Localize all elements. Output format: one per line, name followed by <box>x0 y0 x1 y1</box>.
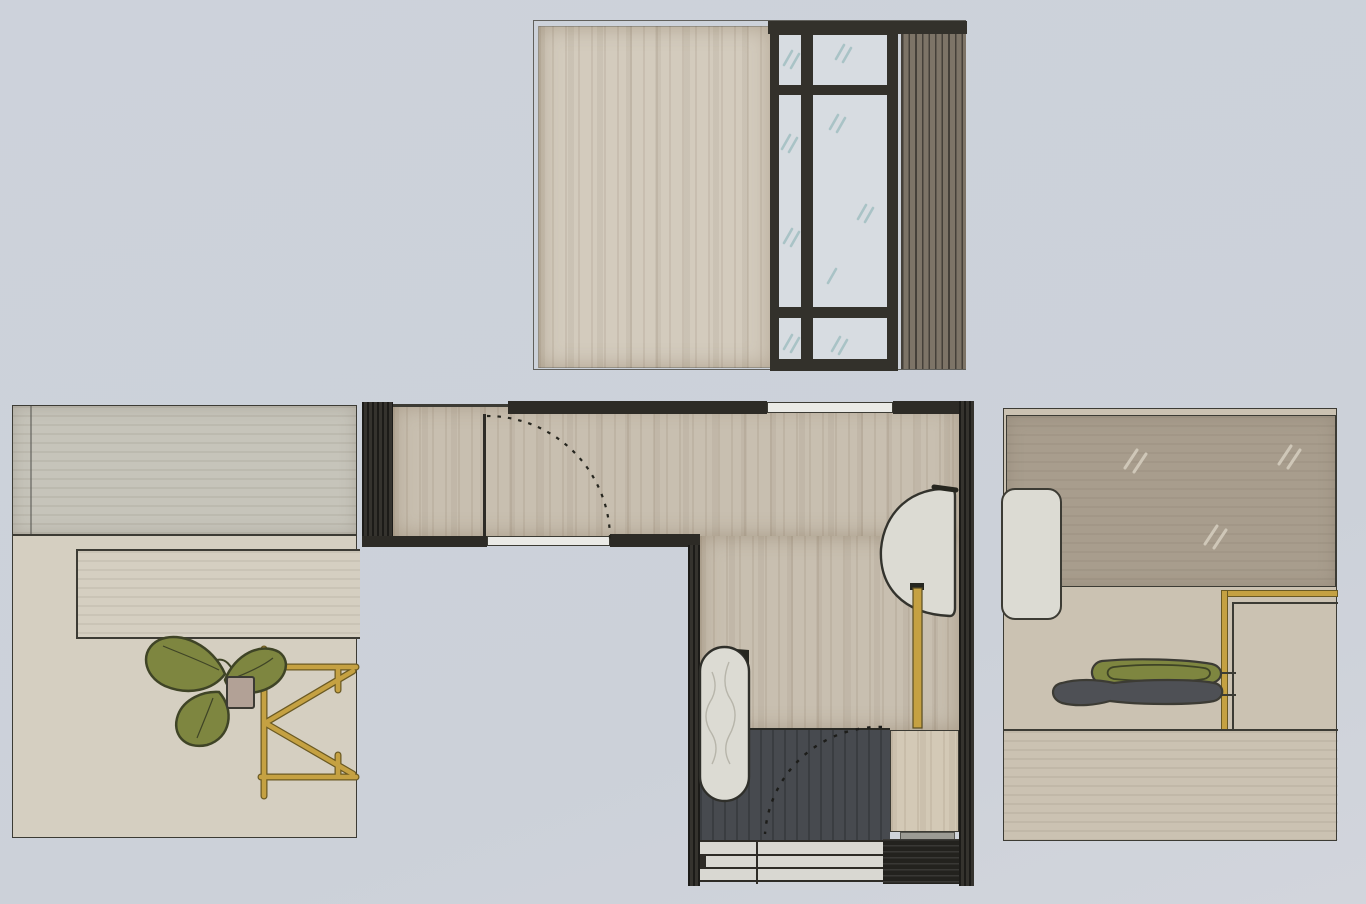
floor-plan <box>0 0 1366 904</box>
plan-overlay-art <box>360 400 980 890</box>
entry-door-swing-arc <box>765 727 882 834</box>
door-swing-arc <box>487 416 610 539</box>
scanned-drawing-sheet <box>0 0 1366 904</box>
oval-mat <box>700 647 749 801</box>
